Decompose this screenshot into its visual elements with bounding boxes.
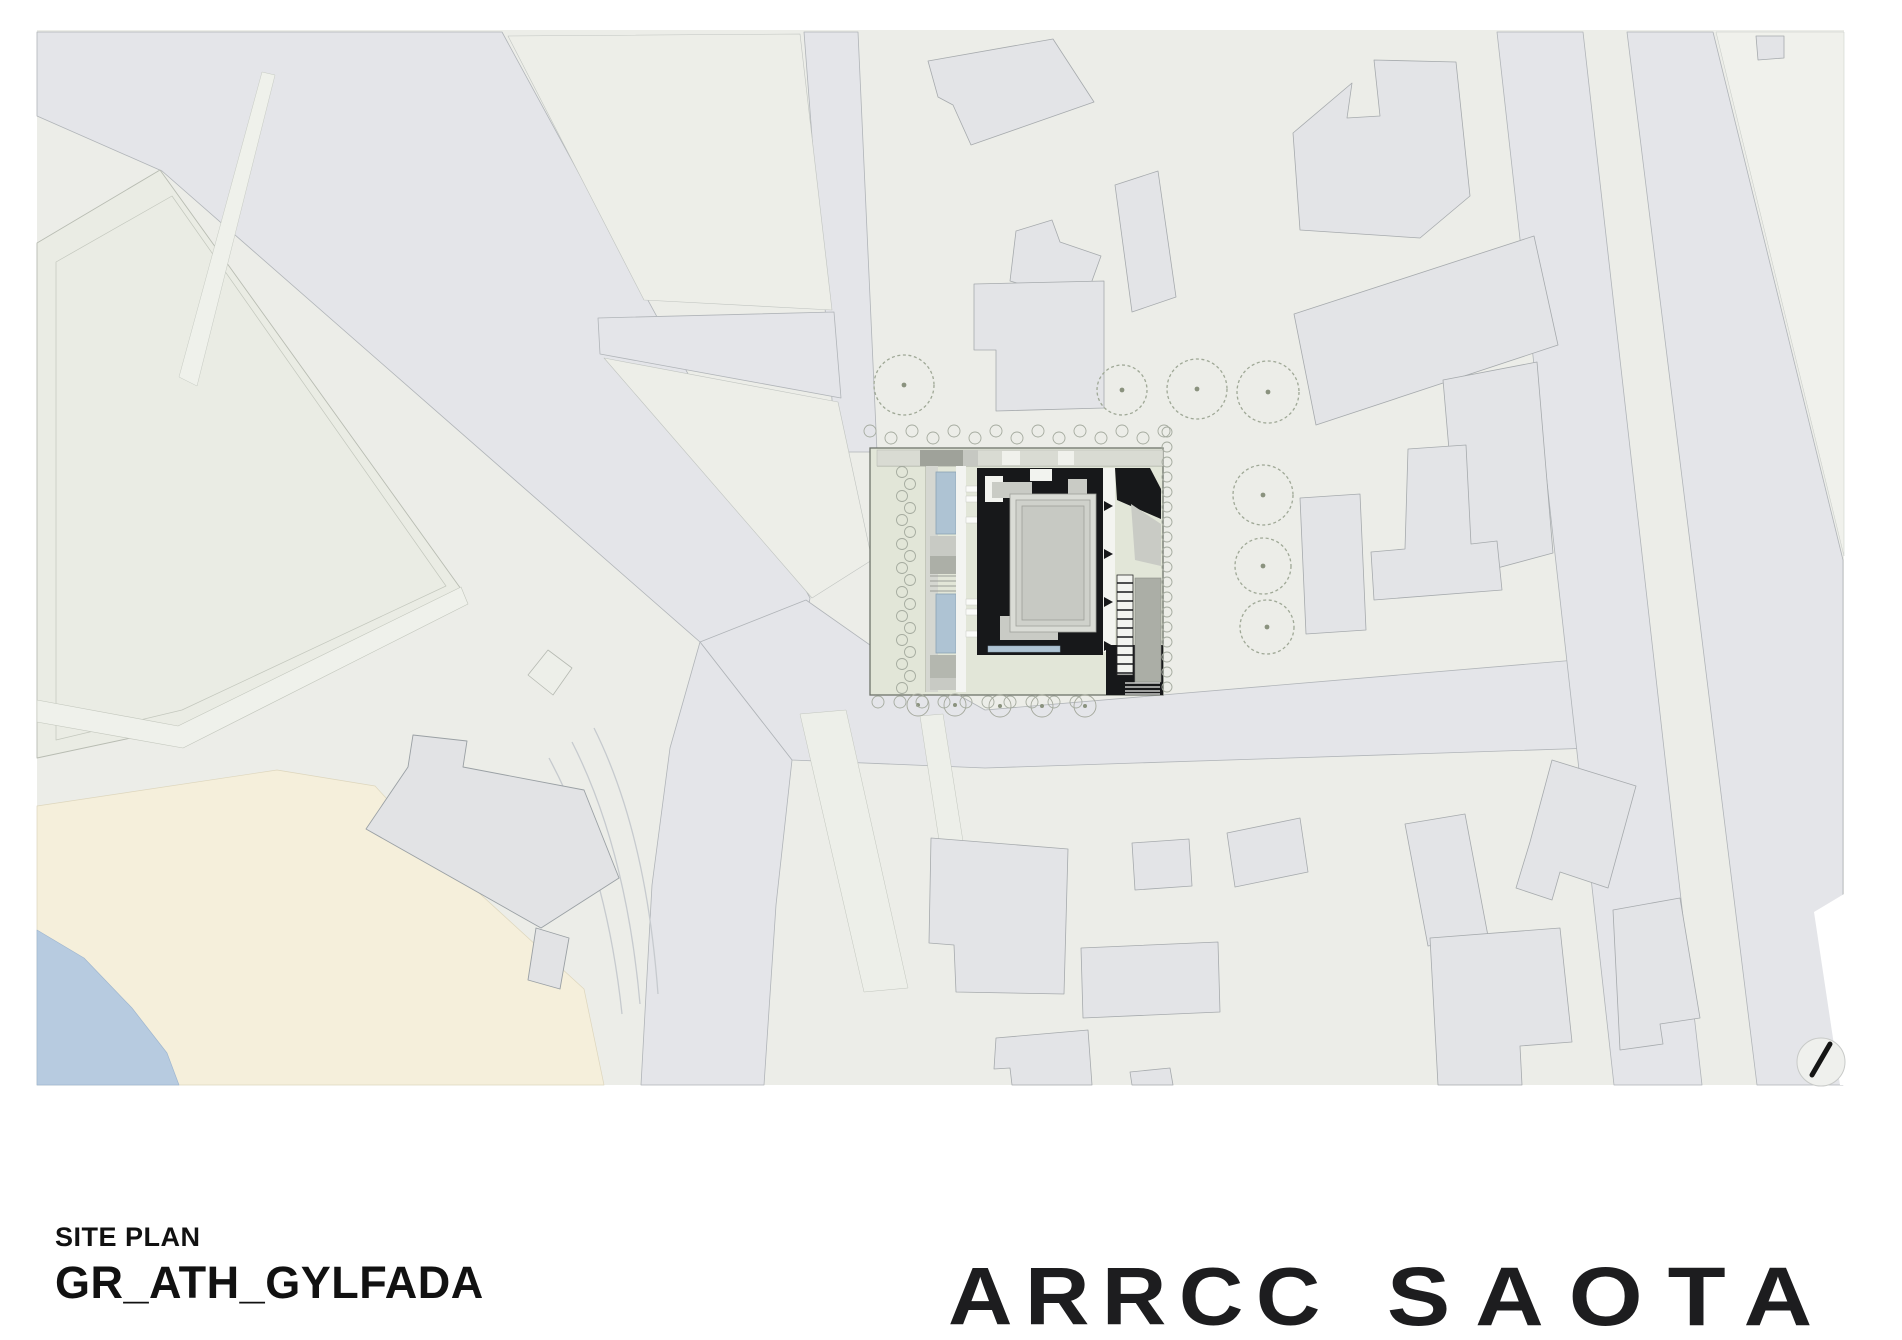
tree-trunk-dot (953, 703, 957, 707)
site-deck-block-2 (930, 556, 959, 574)
site-top-gap-2 (1058, 451, 1074, 465)
site-walkway (956, 466, 966, 692)
site-plan-drawing (0, 0, 1902, 1340)
tree-trunk-dot (1261, 493, 1266, 498)
stair-ladder (1117, 575, 1133, 675)
project-name-label: GR_ATH_GYLFADA (55, 1257, 484, 1309)
building (1132, 839, 1192, 890)
site-pool-lower (936, 594, 956, 653)
tree-trunk-dot (1120, 388, 1125, 393)
tree-trunk-dot (902, 383, 907, 388)
roof-notch-white-2 (1030, 469, 1052, 481)
drawing-sheet: SITE PLAN GR_ATH_GYLFADA ARRCC SAOTA (0, 0, 1902, 1340)
site-pool-upper (936, 472, 956, 534)
site-pool-sliver (988, 646, 1060, 652)
tree-trunk-dot (998, 704, 1002, 708)
building (1081, 942, 1220, 1018)
saota-logo: SAOTA (1387, 1249, 1837, 1340)
site-deck-block-4 (930, 678, 960, 690)
tree-trunk-dot (1083, 704, 1087, 708)
building (1756, 36, 1784, 60)
title-block: SITE PLAN GR_ATH_GYLFADA (55, 1222, 484, 1309)
site-plan-map (0, 0, 1902, 1340)
site-top-paving-med (963, 450, 978, 466)
central-roof-core (1022, 506, 1084, 620)
drawing-type-label: SITE PLAN (55, 1222, 484, 1253)
roof-edge-strip (1103, 468, 1115, 652)
logo-row: ARRCC SAOTA (948, 1236, 1888, 1340)
tree-trunk-dot (1040, 704, 1044, 708)
stair-side-panel (1135, 578, 1161, 682)
tree-trunk-dot (1265, 625, 1270, 630)
tree-trunk-dot (1195, 387, 1200, 392)
site-top-gap-1 (1002, 451, 1020, 465)
building (1300, 494, 1366, 634)
arrcc-logo: ARRCC (948, 1250, 1333, 1340)
site-top-paving-dark (920, 450, 963, 466)
tree-trunk-dot (1266, 390, 1271, 395)
tree-trunk-dot (1261, 564, 1266, 569)
